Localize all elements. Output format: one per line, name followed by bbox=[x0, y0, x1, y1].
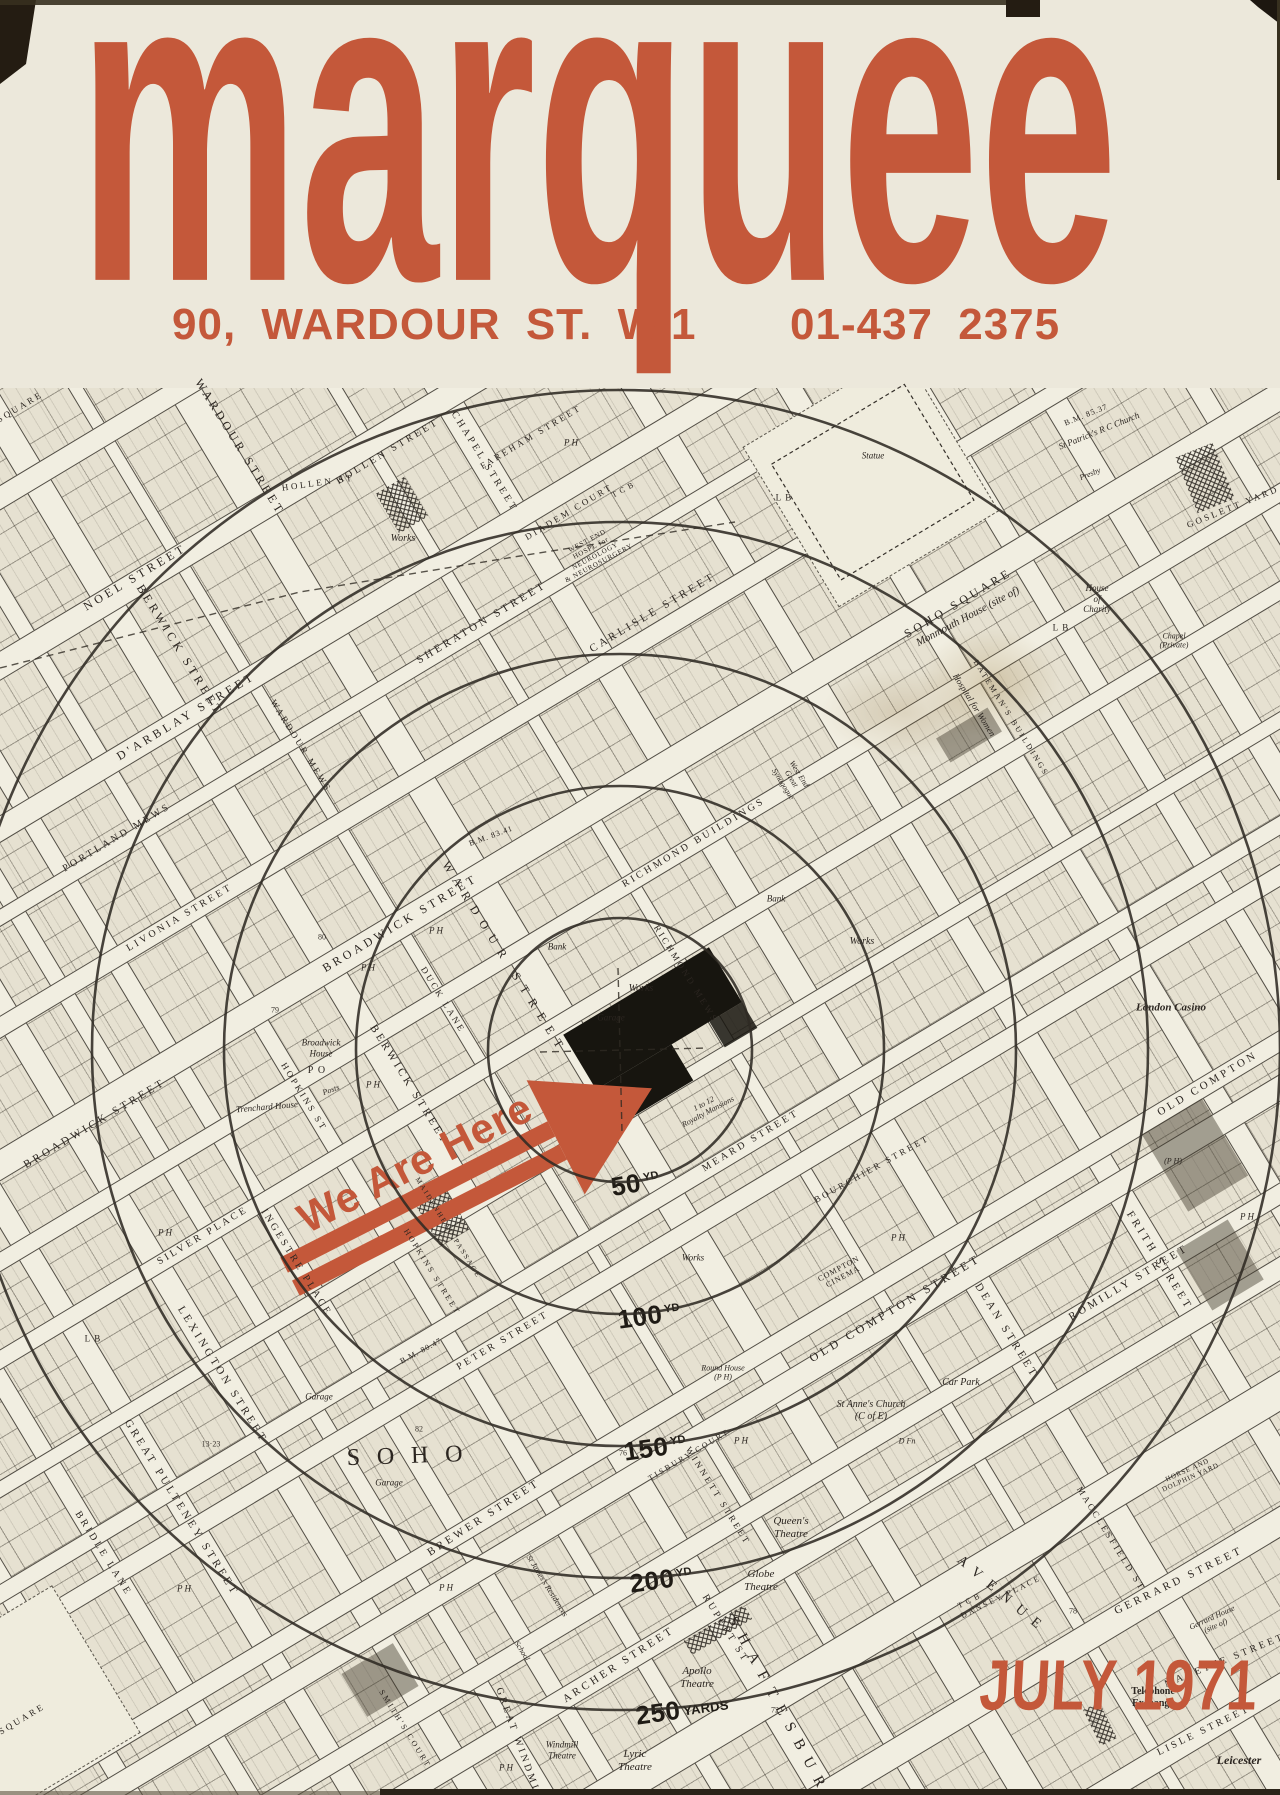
street-grid bbox=[0, 388, 1280, 1795]
header: marquee 90, WARDOUR ST. W.1 01-437 2375 bbox=[0, 0, 1280, 388]
soho-street-map bbox=[0, 388, 1280, 1795]
programme-cover: marquee 90, WARDOUR ST. W.1 01-437 2375 bbox=[0, 0, 1280, 1795]
venue-address: 90, WARDOUR ST. W.1 bbox=[172, 300, 696, 350]
venue-phone: 01-437 2375 bbox=[790, 300, 1060, 350]
issue-date: JULY 1971 bbox=[978, 1645, 1260, 1727]
